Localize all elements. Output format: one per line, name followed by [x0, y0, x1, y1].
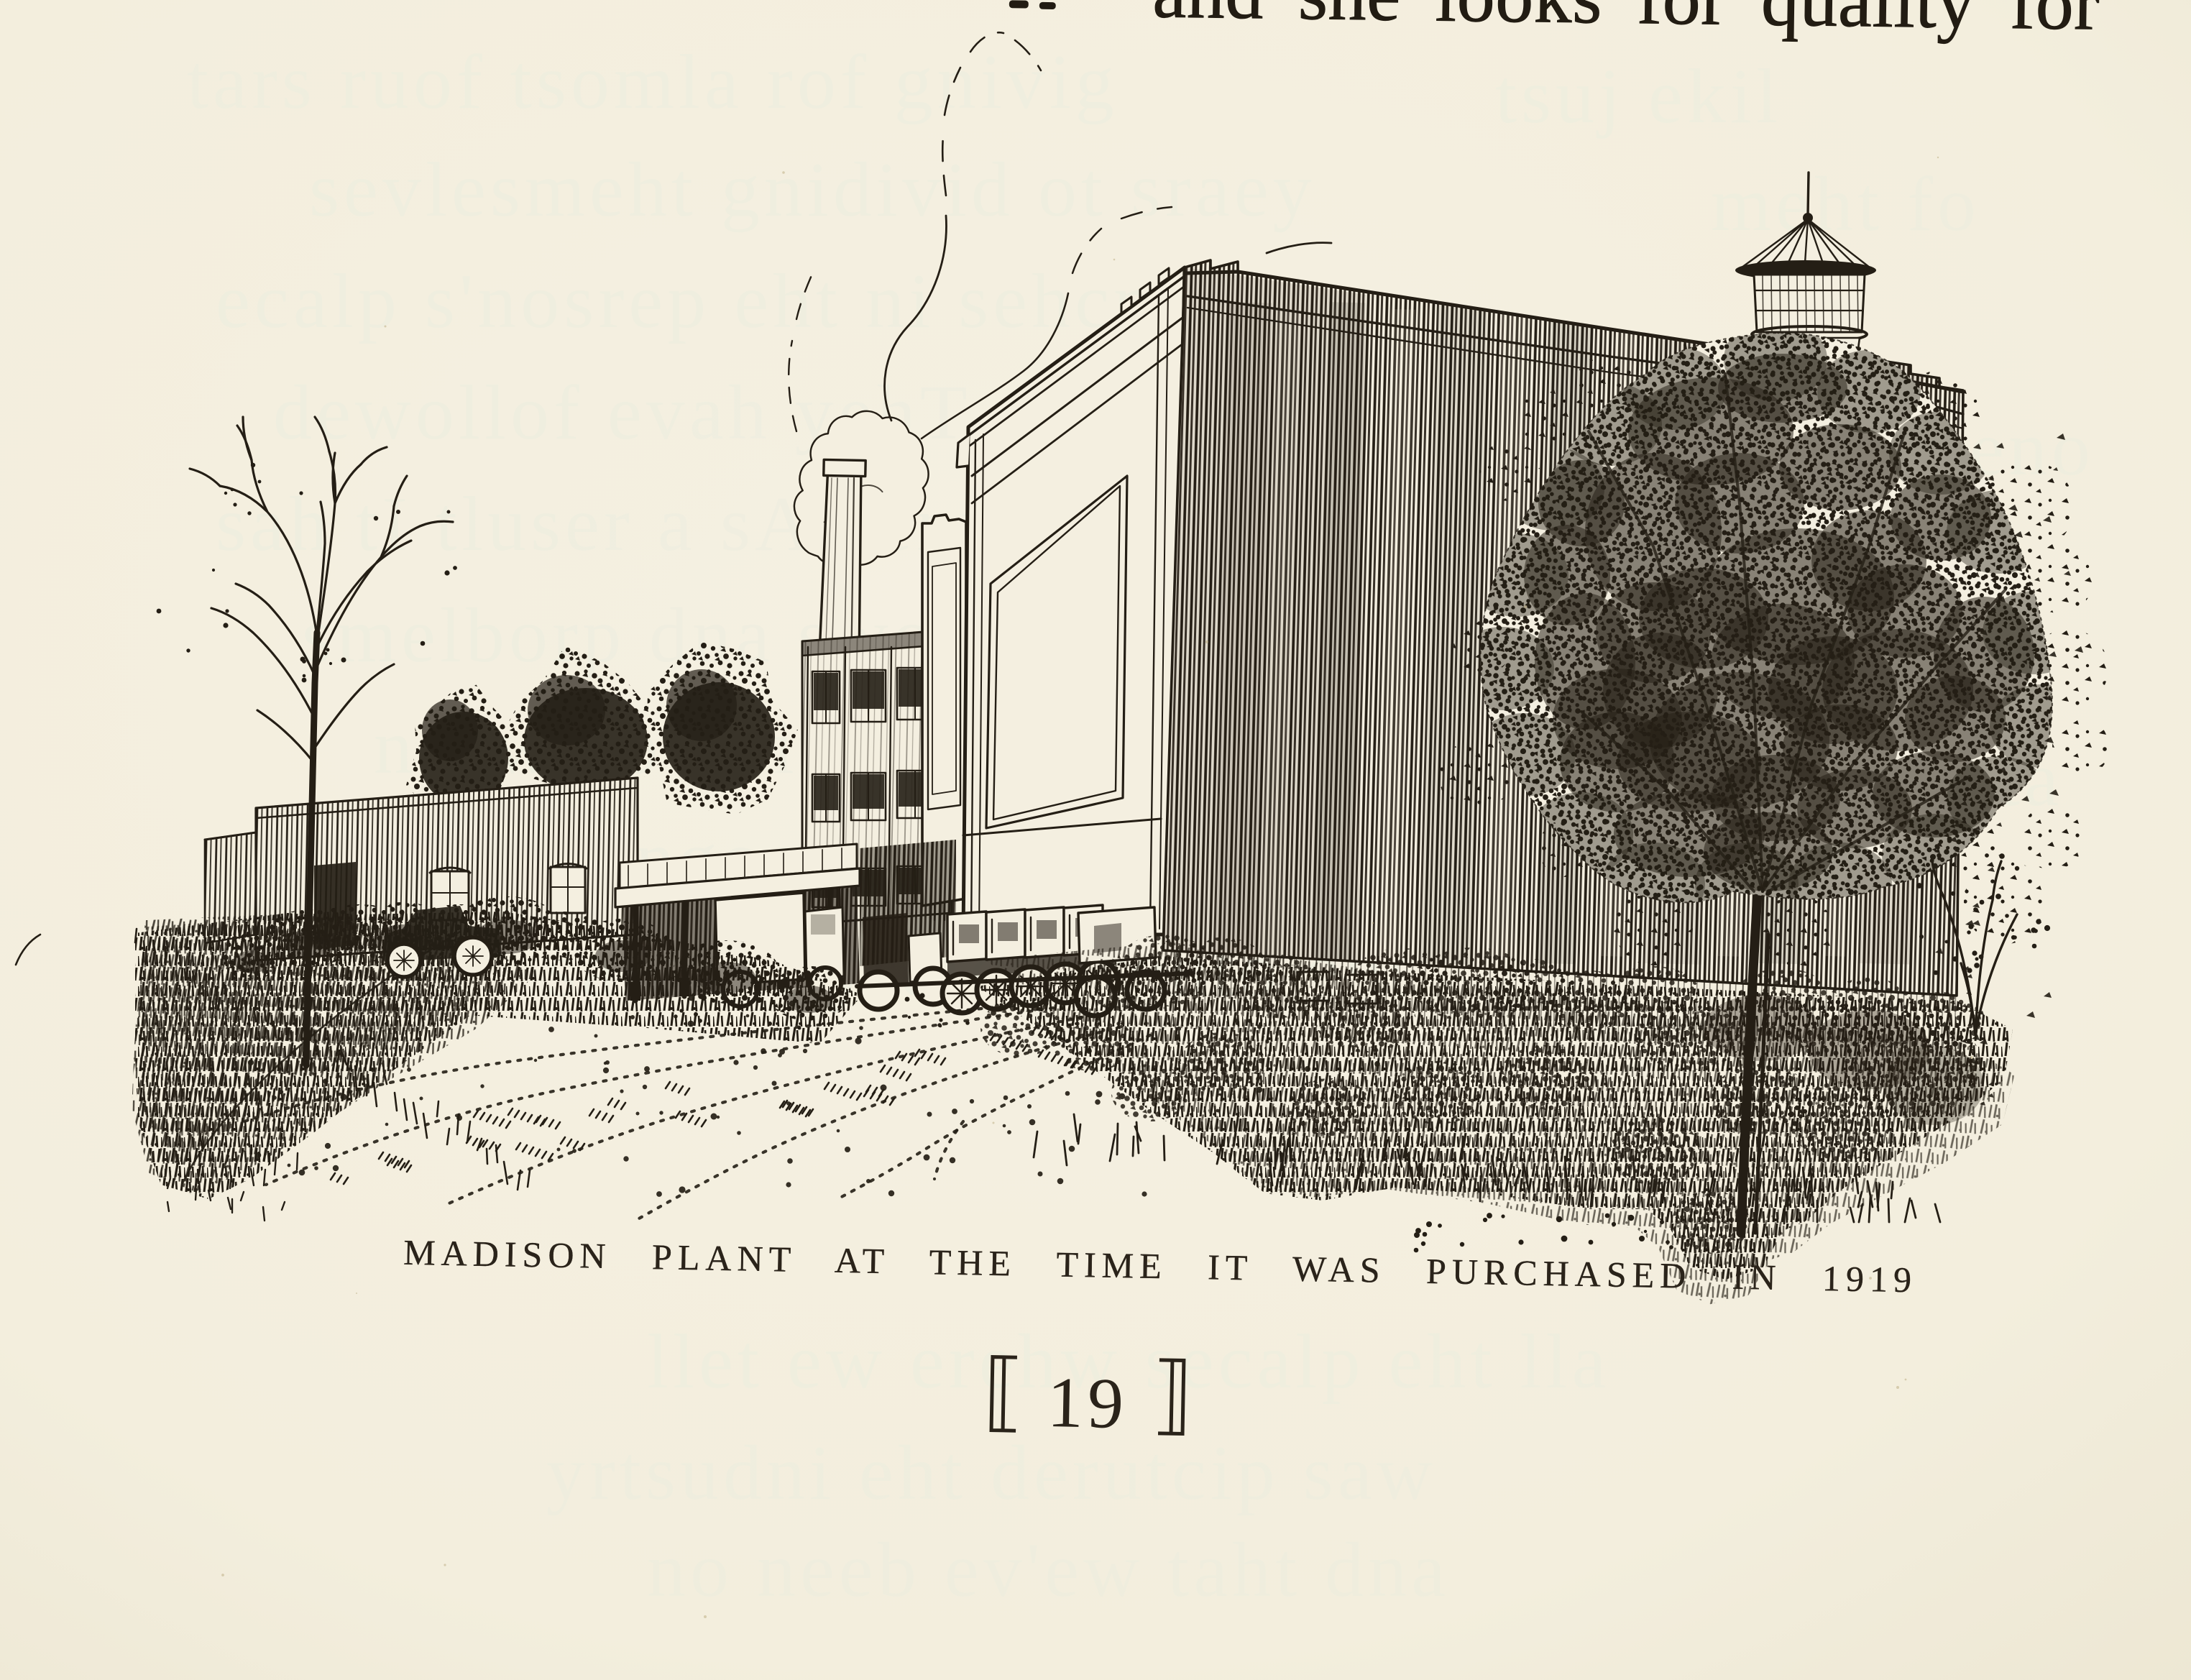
svg-text:meht fo: meht fo	[1711, 162, 1980, 247]
svg-text:sevlesmeht gnidivid ot sraey: sevlesmeht gnidivid ot sraey	[309, 147, 1316, 233]
svg-text:tsuj ekil: tsuj ekil	[1495, 54, 1782, 139]
svg-text:tars ruof tsomla rof gnivig: tars ruof tsomla rof gnivig	[187, 40, 1119, 125]
svg-text:llet ew erehw secalp eht lla: llet ew erehw secalp eht lla	[647, 1319, 1610, 1405]
svg-text:no neeb ev'ew taht dna: no neeb ev'ew taht dna	[647, 1528, 1450, 1613]
svg-text:yrtsudni eht derutcip saw: yrtsudni eht derutcip saw	[546, 1431, 1437, 1516]
svg-text:19: 19	[1047, 1362, 1129, 1443]
